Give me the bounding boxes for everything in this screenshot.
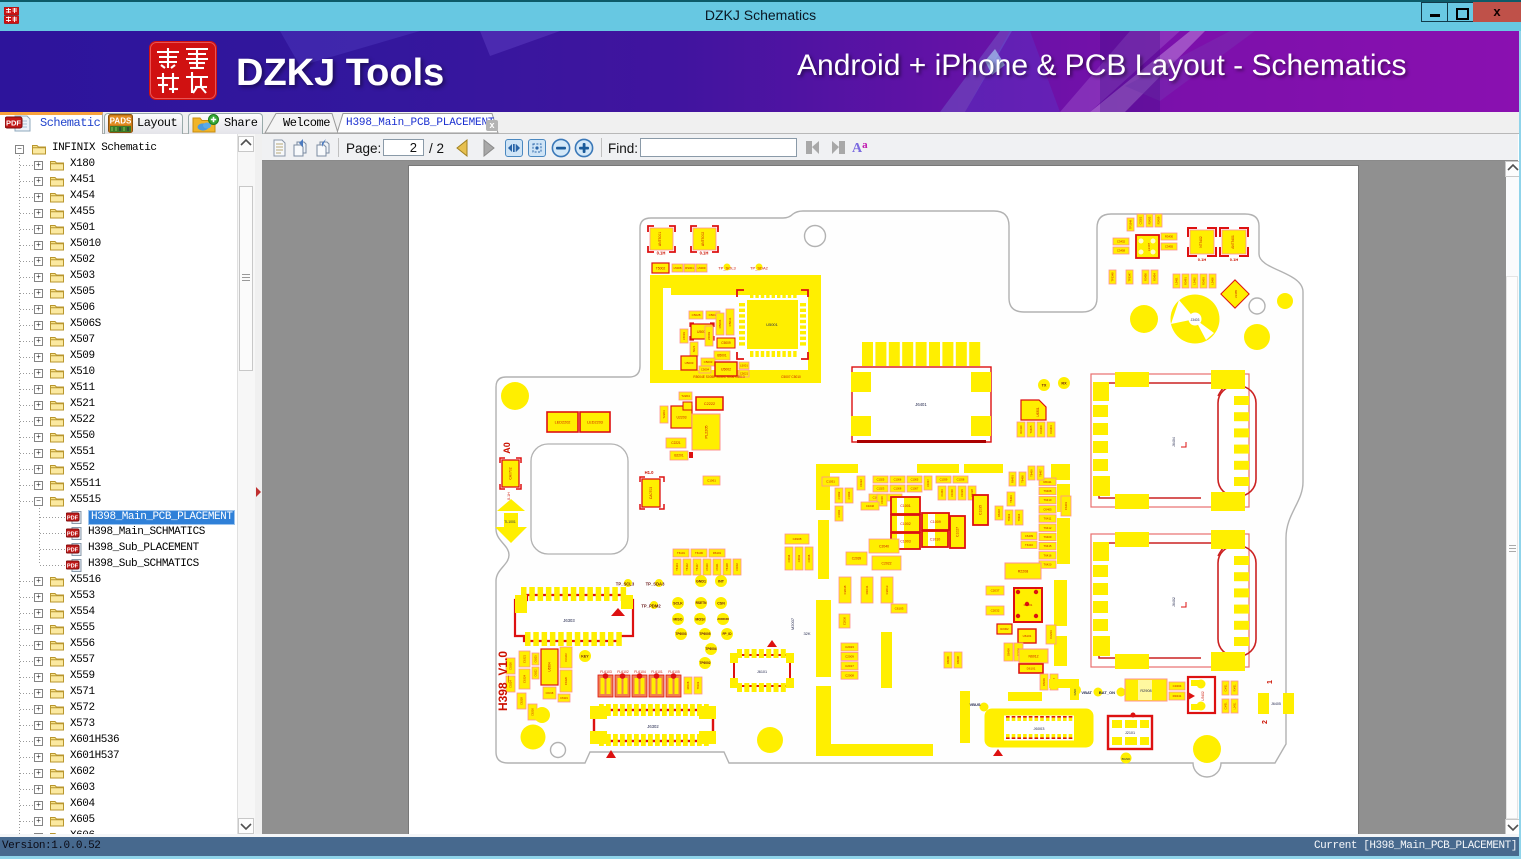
svg-text:T6106: T6106	[695, 551, 703, 555]
svg-text:C1009: C1009	[930, 520, 941, 524]
svg-text:T6409: T6409	[1044, 535, 1052, 539]
svg-text:R3403: R3403	[1201, 277, 1205, 285]
svg-text:R3439: R3439	[1156, 216, 1160, 224]
svg-text:C1038: C1038	[957, 477, 965, 481]
svg-text:A0: A0	[502, 442, 512, 454]
svg-text:C3404: C3404	[1173, 684, 1182, 688]
svg-text:M2007: M2007	[790, 617, 795, 630]
svg-text:C3455: C3455	[1165, 245, 1174, 249]
svg-text:KEY: KEY	[581, 654, 589, 658]
svg-text:C2037: C2037	[991, 589, 1000, 593]
svg-text:C6103: C6103	[895, 607, 904, 611]
svg-text:BAT_ON: BAT_ON	[1099, 690, 1115, 695]
svg-text:T6104: T6104	[675, 563, 679, 571]
svg-text:1: 1	[1267, 680, 1274, 684]
svg-text:T6412: T6412	[1044, 526, 1052, 530]
svg-text:U3402: U3402	[1201, 691, 1205, 701]
svg-text:TP_SDA2: TP_SDA2	[750, 266, 769, 271]
svg-text:B5001: B5001	[717, 354, 726, 358]
svg-text:J3465: J3465	[1234, 290, 1238, 299]
svg-text:C6304: C6304	[1049, 425, 1053, 434]
svg-text:C2038: C2038	[843, 585, 847, 594]
svg-text:C1003: C1003	[900, 540, 911, 544]
svg-text:C1002: C1002	[900, 522, 911, 526]
svg-text:RSETN: RSETN	[696, 601, 708, 605]
svg-text:T6415: T6415	[1044, 544, 1052, 548]
svg-text:32K: 32K	[803, 631, 810, 636]
svg-text:T6101: T6101	[677, 551, 685, 555]
svg-text:C1032: C1032	[837, 491, 841, 499]
svg-text:C1051: C1051	[826, 480, 835, 484]
svg-text:J6405: J6405	[1271, 702, 1281, 706]
svg-text:C1010: C1010	[930, 538, 941, 542]
svg-text:C6110: C6110	[705, 563, 709, 571]
svg-text:C2032: C2032	[991, 609, 1000, 613]
svg-text:U6301: U6301	[1036, 407, 1040, 417]
svg-text:T6406: T6406	[1020, 475, 1024, 483]
svg-text:B2201: B2201	[674, 454, 683, 458]
svg-text:U6304: U6304	[548, 662, 552, 672]
svg-text:NT3402: NT3402	[1199, 236, 1203, 248]
svg-text:C1035: C1035	[979, 505, 983, 515]
svg-text:T2204: T2204	[681, 394, 690, 398]
svg-text:C1001: C1001	[900, 504, 911, 508]
svg-text:C1005: C1005	[911, 477, 919, 481]
svg-text:AVDD28: AVDD28	[717, 617, 729, 621]
svg-text:R3433: R3433	[1147, 216, 1151, 224]
svg-text:J6101: J6101	[757, 670, 767, 674]
svg-text:U6101: U6101	[1023, 634, 1032, 638]
svg-text:INT: INT	[718, 579, 725, 583]
svg-text:C1029: C1029	[960, 489, 964, 497]
svg-text:C1039: C1039	[940, 477, 948, 481]
svg-text:C2040: C2040	[879, 544, 889, 548]
svg-text:L5003: L5003	[707, 331, 711, 340]
svg-text:C2017: C2017	[845, 664, 854, 668]
svg-text:C1030: C1030	[950, 489, 954, 497]
svg-text:R5004: R5004	[718, 319, 722, 328]
svg-text:R6108: R6108	[686, 681, 690, 689]
svg-text:C1023: C1023	[877, 486, 885, 490]
svg-text:H1.0: H1.0	[645, 470, 655, 475]
svg-text:C6111: C6111	[715, 563, 719, 571]
svg-text:C1022: C1022	[859, 479, 863, 487]
svg-text:T2203: T2203	[662, 410, 666, 419]
svg-text:R3436: R3436	[1143, 273, 1147, 281]
svg-text:C5004: C5004	[701, 368, 710, 372]
svg-text:VBAT: VBAT	[1081, 690, 1092, 695]
svg-text:C6319: C6319	[560, 696, 568, 700]
svg-text:T5002: T5002	[656, 266, 666, 270]
svg-text:CA0702: CA0702	[509, 467, 513, 479]
svg-text:0.1H: 0.1H	[657, 251, 666, 256]
svg-text:J2101: J2101	[1125, 731, 1135, 735]
svg-text:BGND: BGND	[1122, 757, 1132, 761]
svg-text:C4914: C4914	[787, 554, 791, 562]
svg-text:T6405: T6405	[1029, 425, 1033, 433]
svg-text:R3434: R3434	[1152, 273, 1156, 281]
svg-text:T6400: T6400	[1029, 469, 1033, 477]
svg-text:U5003: U5003	[685, 361, 694, 365]
svg-text:R6401: R6401	[1010, 475, 1014, 483]
svg-text:C5003: C5003	[704, 360, 713, 364]
svg-text:D6409: D6409	[1006, 648, 1010, 656]
svg-text:PDF: PDF	[67, 547, 79, 553]
svg-text:N6012: N6012	[1029, 654, 1039, 658]
svg-text:R6008: R6008	[956, 656, 960, 664]
svg-text:2: 2	[1262, 720, 1269, 724]
svg-text:C1061: C1061	[707, 479, 716, 483]
svg-text:PDF: PDF	[67, 531, 79, 537]
svg-text:R2302: R2302	[1000, 627, 1009, 631]
svg-text:C6401: C6401	[1064, 501, 1068, 510]
svg-text:R5009: R5009	[1042, 678, 1046, 686]
svg-text:MISO: MISO	[673, 617, 682, 621]
svg-text:TP6002: TP6002	[699, 661, 710, 665]
svg-text:C6300: C6300	[1039, 425, 1043, 434]
svg-text:LED2203: LED2203	[587, 420, 603, 424]
svg-text:PL2205: PL2205	[704, 425, 708, 438]
svg-text:0.1H: 0.1H	[1198, 257, 1207, 262]
svg-text:0.1H: 0.1H	[1230, 257, 1239, 262]
svg-text:TP_SDA3: TP_SDA3	[646, 582, 666, 587]
svg-text:C6320: C6320	[564, 676, 568, 685]
svg-text:RS001: RS001	[685, 266, 694, 270]
svg-text:R3431: R3431	[1233, 684, 1236, 692]
svg-text:R6410: R6410	[1019, 425, 1023, 434]
svg-text:J6401: J6401	[915, 402, 927, 407]
svg-text:C6322: C6322	[534, 669, 537, 677]
svg-text:ANT5001: ANT5001	[658, 232, 662, 246]
svg-text:C4911: C4911	[797, 554, 801, 562]
svg-text:L3401: L3401	[1174, 277, 1178, 285]
svg-text:J6404: J6404	[1172, 437, 1176, 447]
svg-text:J6302: J6302	[647, 724, 659, 729]
svg-text:TP_SCL3: TP_SCL3	[616, 582, 635, 587]
svg-text:R6418: R6418	[997, 509, 1001, 517]
svg-text:L3406: L3406	[1210, 277, 1214, 285]
svg-text:TP6005: TP6005	[699, 632, 710, 636]
svg-text:T6403: T6403	[1009, 495, 1013, 503]
svg-text:T6103: T6103	[696, 681, 700, 689]
svg-text:C2036: C2036	[842, 616, 846, 625]
svg-text:T6102: T6102	[685, 563, 689, 571]
svg-text:C5028: C5028	[692, 313, 701, 317]
svg-text:R2908: R2908	[1140, 689, 1151, 693]
svg-text:C1025: C1025	[877, 477, 885, 481]
svg-text:C2023: C2023	[845, 645, 854, 649]
svg-text:TP6003: TP6003	[675, 632, 686, 636]
svg-text:T6107: T6107	[695, 563, 699, 571]
svg-text:L3431: L3431	[1233, 702, 1236, 709]
svg-text:ANT3401: ANT3401	[1231, 235, 1235, 249]
svg-text:L5008: L5008	[674, 266, 682, 270]
svg-text:T6407: T6407	[1038, 469, 1042, 477]
svg-text:C6405: C6405	[1043, 507, 1052, 511]
svg-text:U5002: U5002	[721, 367, 731, 371]
svg-text:L5019: L5019	[682, 332, 686, 340]
svg-text:C6216: C6216	[530, 708, 534, 716]
svg-text:TL1001: TL1001	[504, 520, 516, 524]
svg-text:L3407: L3407	[1147, 242, 1151, 251]
svg-text:VBUS: VBUS	[969, 702, 980, 707]
svg-text:PADS: PADS	[110, 117, 132, 126]
svg-text:0.1H: 0.1H	[507, 492, 511, 500]
svg-text:C2039: C2039	[852, 557, 862, 561]
svg-text:R3430: R3430	[1165, 235, 1174, 239]
svg-text:R5004E S005E S050C S006 C5013: R5004E S005E S050C S006 C5013	[693, 375, 744, 379]
svg-text:TP3348: TP3348	[1110, 272, 1114, 282]
svg-text:C3431: C3431	[1224, 684, 1227, 692]
svg-text:T6420: T6420	[1044, 563, 1052, 567]
svg-text:GND1: GND1	[696, 579, 706, 583]
svg-text:C2013: C2013	[885, 585, 889, 594]
svg-text:C2221: C2221	[671, 441, 681, 445]
svg-text:C2008: C2008	[845, 673, 854, 677]
svg-text:J3403: J3403	[1191, 318, 1200, 322]
svg-text:C3352: C3352	[1138, 216, 1142, 224]
svg-text:R3491: R3491	[1183, 277, 1187, 285]
svg-text:C5009: C5009	[721, 341, 731, 345]
svg-text:FP_ID: FP_ID	[722, 632, 732, 636]
svg-text:TP_SOL3: TP_SOL3	[718, 266, 736, 271]
svg-text:C6325: C6325	[534, 655, 537, 663]
svg-text:C4916: C4916	[807, 554, 811, 562]
svg-text:C6228: C6228	[519, 697, 523, 705]
svg-text:H398_V1.0: H398_V1.0	[496, 651, 510, 711]
svg-text:TP3347: TP3347	[1127, 272, 1131, 282]
svg-text:0.1H: 0.1H	[700, 251, 709, 256]
svg-text:MOSI: MOSI	[695, 617, 704, 621]
svg-text:PDF: PDF	[67, 563, 79, 569]
svg-text:TP3349: TP3349	[1128, 219, 1132, 229]
svg-text:C4002: C4002	[735, 563, 739, 571]
svg-text:C1027: C1027	[956, 527, 960, 537]
svg-text:U2203: U2203	[677, 415, 687, 419]
svg-text:C1006: C1006	[894, 477, 902, 481]
svg-text:SCLK: SCLK	[673, 601, 683, 605]
svg-text:D6101: D6101	[1027, 667, 1036, 671]
svg-text:ANT5002: ANT5002	[701, 232, 705, 246]
svg-text:LED2202: LED2202	[555, 420, 571, 424]
svg-text:C5031: C5031	[728, 317, 732, 326]
svg-text:C1008: C1008	[894, 486, 902, 490]
svg-text:T6402: T6402	[1007, 513, 1011, 521]
svg-text:T6408: T6408	[1044, 489, 1052, 493]
svg-text:T6416: T6416	[1044, 553, 1052, 557]
svg-text:C6321: C6321	[522, 654, 526, 663]
svg-text:R6411: R6411	[1043, 480, 1051, 484]
svg-text:C1046: C1046	[866, 504, 875, 508]
svg-text:T6416: T6416	[1025, 543, 1033, 547]
svg-text:C2234: C2234	[1049, 630, 1053, 639]
svg-text:C6318: C6318	[546, 691, 554, 695]
svg-text:C6323: C6323	[564, 653, 568, 662]
svg-text:RX: RX	[1061, 381, 1067, 385]
svg-text:TP_PDM2: TP_PDM2	[641, 604, 661, 609]
svg-text:CSN: CSN	[717, 601, 725, 605]
svg-text:PDF: PDF	[6, 119, 21, 128]
svg-text:GND: GND	[1073, 688, 1077, 696]
svg-text:C1033: C1033	[847, 491, 851, 499]
svg-text:T6108: T6108	[725, 563, 729, 571]
svg-text:T6404: T6404	[1017, 513, 1021, 521]
svg-text:C1037: C1037	[926, 479, 930, 487]
svg-text:T6411: T6411	[1044, 517, 1052, 521]
svg-text:C4908: C4908	[793, 537, 802, 541]
svg-text:C3401: C3401	[1224, 702, 1227, 710]
svg-text:L5001: L5001	[740, 364, 748, 368]
svg-text:C2009: C2009	[845, 655, 854, 659]
svg-text:R6101: R6101	[713, 551, 722, 555]
svg-text:J6402: J6402	[1172, 597, 1176, 607]
svg-text:C6324: C6324	[522, 674, 526, 683]
svg-text:L3402: L3402	[1192, 277, 1196, 285]
svg-text:R6006: R6006	[946, 656, 950, 664]
svg-text:T6410: T6410	[1044, 498, 1052, 502]
svg-text:C1031: C1031	[837, 509, 841, 517]
svg-text:D2201: D2201	[1024, 603, 1033, 607]
svg-text:U5001: U5001	[766, 322, 779, 327]
svg-text:L5009: L5009	[698, 266, 706, 270]
svg-text:S021: S021	[692, 345, 696, 352]
svg-text:C3432: C3432	[1117, 240, 1126, 244]
svg-text:CA0703: CA0703	[649, 487, 653, 499]
svg-text:TP6004: TP6004	[705, 647, 716, 651]
svg-text:TX: TX	[1042, 383, 1047, 387]
svg-text:C1007: C1007	[911, 486, 919, 490]
svg-text:R1041: R1041	[865, 585, 869, 594]
svg-text:C5007 C5010: C5007 C5010	[781, 375, 801, 379]
svg-text:R3441: R3441	[1173, 694, 1182, 698]
svg-text:C3458: C3458	[1117, 249, 1126, 253]
svg-text:R2208: R2208	[1018, 569, 1029, 573]
svg-text:C6409: C6409	[1025, 534, 1034, 538]
svg-text:C1016: C1016	[880, 496, 884, 504]
svg-text:C2222: C2222	[704, 402, 715, 406]
svg-text:C1033: C1033	[941, 489, 944, 497]
svg-text:PDF: PDF	[67, 515, 79, 521]
svg-text:J6003: J6003	[1034, 726, 1046, 731]
svg-text:J6303: J6303	[563, 618, 575, 623]
svg-text:C2022: C2022	[882, 561, 892, 565]
